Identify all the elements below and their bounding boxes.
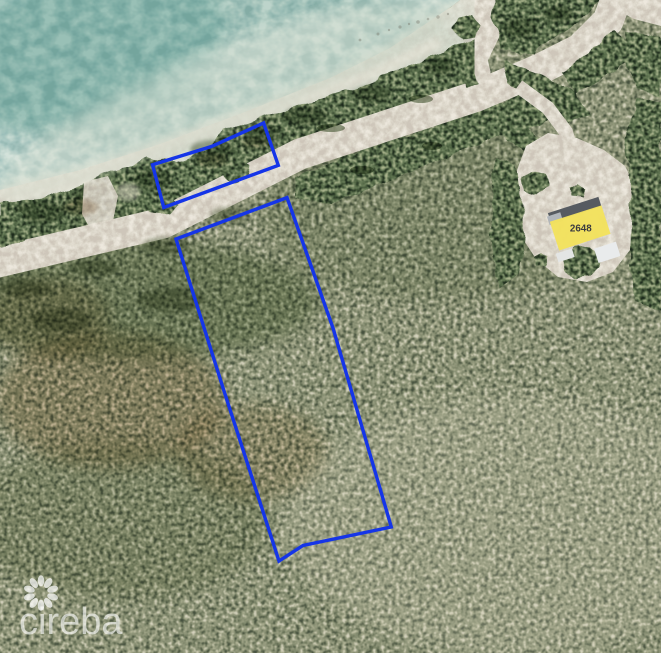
svg-text:cireba: cireba: [19, 601, 123, 643]
svg-text:2648: 2648: [570, 224, 592, 235]
